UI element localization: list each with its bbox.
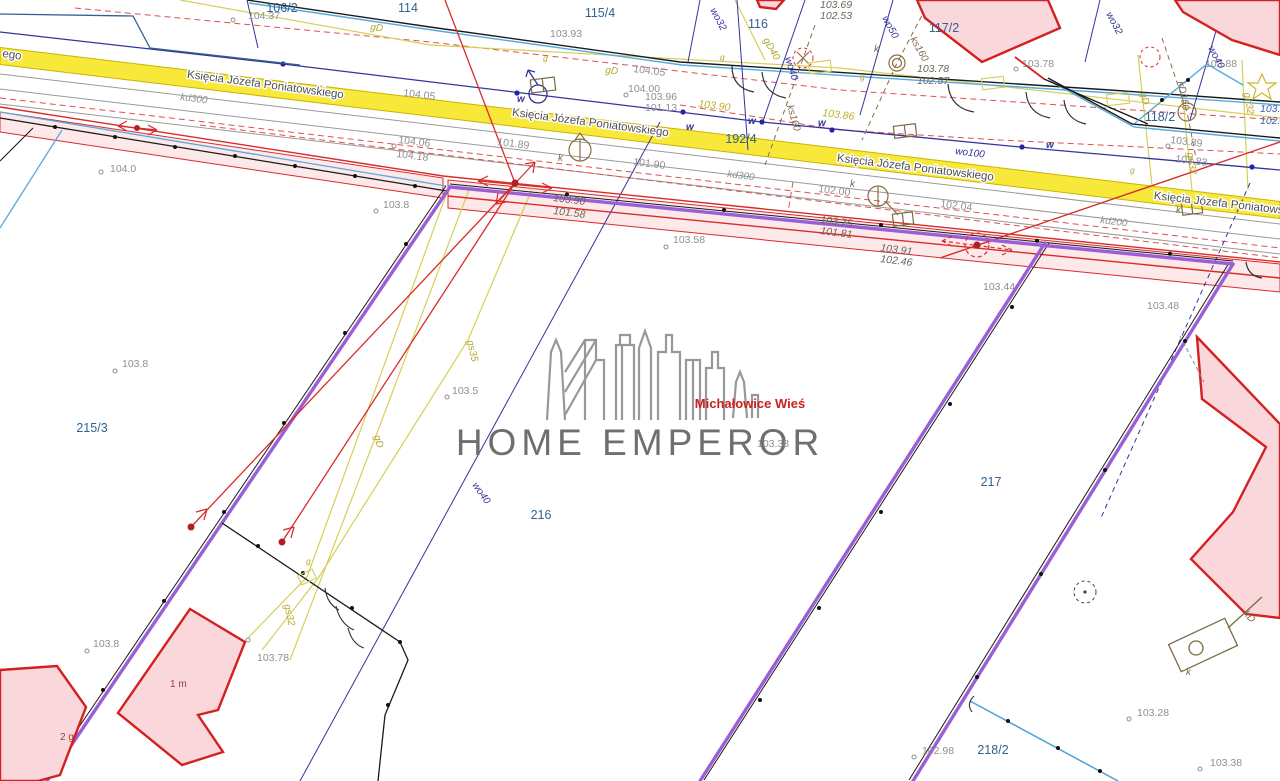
elevation-label: 103.8 xyxy=(383,199,409,211)
symbol-letter-w: w xyxy=(748,116,757,127)
elevation-label: 102.57 xyxy=(917,75,950,87)
elevation-point-dot xyxy=(1127,717,1131,721)
manhole-projected-2 xyxy=(1140,47,1160,67)
parcel-line-bottom-right xyxy=(969,696,1118,781)
parcel-number-192-4: 192/4 xyxy=(725,132,756,146)
elevation-label: 104.0 xyxy=(110,163,136,175)
elevation-label: 103.93 xyxy=(550,28,582,40)
elevation-point-dot xyxy=(113,369,117,373)
utility-label-gs35: gs35 xyxy=(464,339,480,363)
map-canvas: HOME EMPEROR Michałowice Wieś egoKsięcia… xyxy=(0,0,1280,781)
elevation-label: 103.8 xyxy=(93,638,119,650)
elevation-label: 103.9 xyxy=(1260,103,1280,115)
utility-label-gD: gD xyxy=(605,65,619,77)
utility-label-gD: gD xyxy=(371,434,385,449)
elevation-label: 104.06 xyxy=(398,134,431,150)
utility-label-gs32: gs32 xyxy=(281,603,297,627)
elevation-label: 103.58 xyxy=(673,234,705,246)
symbol-letter-w: w xyxy=(686,122,695,133)
elevation-point-dot xyxy=(664,245,668,249)
survey-ray-dots xyxy=(188,524,286,546)
elevation-point-dot xyxy=(231,18,235,22)
connection-segments xyxy=(1015,57,1243,382)
elevation-label: 102.1 xyxy=(1260,115,1280,127)
elevation-label: 104.18 xyxy=(396,148,429,164)
manhole-projected-cross xyxy=(797,52,809,64)
building-top-small xyxy=(757,0,784,9)
elevation-label: 104.05 xyxy=(633,63,666,79)
elevation-label: 103.90 xyxy=(698,98,731,114)
elevation-point-dot xyxy=(1198,767,1202,771)
elevation-label: 103.8 xyxy=(122,358,148,370)
elevation-label: 103.78 xyxy=(1022,58,1054,70)
brand-location: Michałowice Wieś xyxy=(695,396,805,411)
scarp-arcs xyxy=(325,588,364,648)
building-top-right xyxy=(1175,0,1280,55)
cadastral-map: HOME EMPEROR Michałowice Wieś egoKsięcia… xyxy=(0,0,1280,781)
elevation-label: 103.38 xyxy=(1210,757,1242,769)
symbol-letter-w: w xyxy=(818,118,827,129)
utility-label-wo100: wo100 xyxy=(955,146,986,161)
utility-label-wo32: wo32 xyxy=(707,6,728,33)
symbol-letter-w: w xyxy=(1046,140,1055,151)
elevation-label: 104.37 xyxy=(248,10,280,22)
parcel-number-117-2: 117/2 xyxy=(929,21,959,35)
elevation-point-dot xyxy=(85,649,89,653)
elevation-label: 101.13 xyxy=(645,102,677,114)
elevation-label: 103.44 xyxy=(983,281,1015,293)
symbol-letter-k: k xyxy=(1186,667,1192,678)
elevation-point-dot xyxy=(912,755,916,759)
elevation-point-dot xyxy=(1014,67,1018,71)
symbol-letter-k: k xyxy=(850,179,856,190)
elevation-label: 103.38 xyxy=(757,438,789,450)
parcel-number-215-3: 215/3 xyxy=(76,421,107,435)
elevation-label: 103.48 xyxy=(1147,300,1179,312)
elevation-label: 102.46 xyxy=(880,253,913,269)
utility-label-gD: gD xyxy=(1137,91,1151,106)
parcel-number-216: 216 xyxy=(531,508,552,522)
hydrant-symbol xyxy=(526,70,547,103)
building-label: 2 g xyxy=(60,732,74,743)
parcel-number-218-2: 218/2 xyxy=(977,743,1008,757)
elevation-point-dot xyxy=(246,638,250,642)
frontage-line xyxy=(0,118,447,191)
parcel-number-115-4: 115/4 xyxy=(585,6,615,20)
elevation-point-dot xyxy=(99,170,103,174)
elevation-label: 103.86 xyxy=(822,107,855,123)
symbol-letter-w: w xyxy=(517,94,526,105)
symbol-letter-g: g xyxy=(306,556,311,566)
symbol-letter-g: g xyxy=(720,52,725,62)
utility-label-wo32: wo32 xyxy=(1103,10,1124,37)
manhole-k1 xyxy=(569,133,591,161)
utility-label-gD: gD xyxy=(370,22,384,34)
parcel-number-118-2: 118/2 xyxy=(1145,110,1175,124)
pink-strip-left xyxy=(0,112,443,198)
elevation-label: 101.90 xyxy=(633,156,666,172)
building-label: 1 m xyxy=(170,679,187,690)
utility-label-kd300: kd300 xyxy=(180,92,209,106)
elevation-label: 103.89 xyxy=(1170,134,1203,150)
elevation-label: 103.78 xyxy=(257,652,289,664)
utility-label-ks160: ks160 xyxy=(907,35,930,64)
elevation-label: 102.00 xyxy=(818,183,851,199)
elevation-label: 103.5 xyxy=(452,385,478,397)
symbol-letter-g: g xyxy=(1130,165,1135,175)
elevation-label: 102.04 xyxy=(940,198,973,214)
symbol-letter-g: g xyxy=(543,53,548,63)
elevation-point-dot xyxy=(374,209,378,213)
parcel-number-114: 114 xyxy=(398,1,418,15)
elevation-point-dot xyxy=(445,395,449,399)
elevation-label: 102.53 xyxy=(820,10,852,22)
parcel-number-116: 116 xyxy=(748,17,768,31)
building-right xyxy=(1191,337,1280,618)
manhole-k2 xyxy=(868,186,898,215)
elevation-point-dot xyxy=(392,144,396,148)
utility-label-wo40: wo40 xyxy=(470,480,493,506)
elevation-label: 103.28 xyxy=(1137,707,1169,719)
parcel-number-217: 217 xyxy=(981,475,1002,489)
utility-label-kd300: kd300 xyxy=(727,169,756,183)
elevation-label: 103.78 xyxy=(917,63,949,75)
manhole-k3 xyxy=(889,55,905,71)
building-2g xyxy=(0,666,86,781)
utility-label-ks160: ks160 xyxy=(784,104,802,133)
elevation-label: 102.98 xyxy=(922,745,954,757)
fence-line xyxy=(222,523,408,781)
symbol-letter-g: g xyxy=(860,72,865,82)
tree-center-dot xyxy=(1083,590,1086,593)
